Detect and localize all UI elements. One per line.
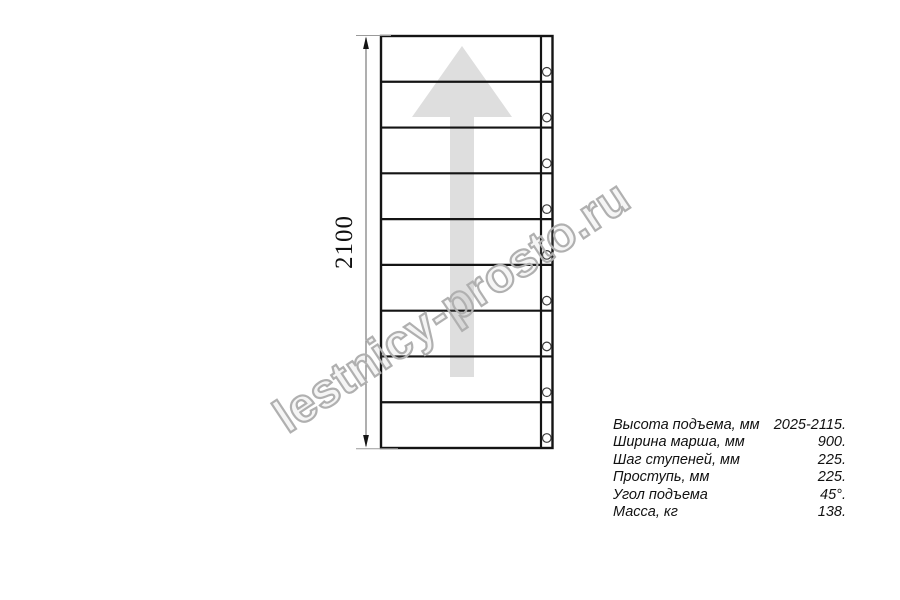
bolt-hole bbox=[543, 67, 552, 76]
spec-value: 900. bbox=[818, 434, 846, 451]
bolt-holes bbox=[543, 67, 552, 442]
ascent-direction-arrow-icon bbox=[412, 46, 512, 377]
dimension-label: 2100 bbox=[332, 200, 358, 284]
spec-value: 2025-2115. bbox=[774, 417, 846, 434]
spec-row: Шаг ступеней, мм225. bbox=[613, 452, 846, 469]
bolt-hole bbox=[543, 159, 552, 168]
bolt-hole bbox=[543, 251, 552, 260]
spec-label: Масса, кг bbox=[613, 504, 678, 521]
bolt-hole bbox=[543, 434, 552, 443]
page: 2100 Высота подъема, мм2025-2115.Ширина … bbox=[0, 0, 900, 600]
spec-row: Угол подъема45°. bbox=[613, 487, 846, 504]
spec-label: Шаг ступеней, мм bbox=[613, 452, 740, 469]
spec-label: Высота подъема, мм bbox=[613, 417, 760, 434]
bolt-hole bbox=[543, 342, 552, 351]
spec-value: 45°. bbox=[820, 487, 846, 504]
spec-label: Угол подъема bbox=[613, 487, 708, 504]
spec-row: Ширина марша, мм900. bbox=[613, 434, 846, 451]
spec-label: Проступь, мм bbox=[613, 469, 709, 486]
specs-table: Высота подъема, мм2025-2115.Ширина марша… bbox=[613, 417, 846, 521]
bolt-hole bbox=[543, 113, 552, 122]
bolt-hole bbox=[543, 388, 552, 397]
spec-value: 225. bbox=[818, 452, 846, 469]
bolt-hole bbox=[543, 205, 552, 214]
spec-row: Проступь, мм225. bbox=[613, 469, 846, 486]
bolt-hole bbox=[543, 296, 552, 305]
spec-row: Масса, кг138. bbox=[613, 504, 846, 521]
dimension-arrowhead-down-icon bbox=[363, 435, 369, 448]
spec-value: 225. bbox=[818, 469, 846, 486]
spec-row: Высота подъема, мм2025-2115. bbox=[613, 417, 846, 434]
dimension-arrowhead-up-icon bbox=[363, 37, 369, 50]
spec-label: Ширина марша, мм bbox=[613, 434, 745, 451]
spec-value: 138. bbox=[818, 504, 846, 521]
